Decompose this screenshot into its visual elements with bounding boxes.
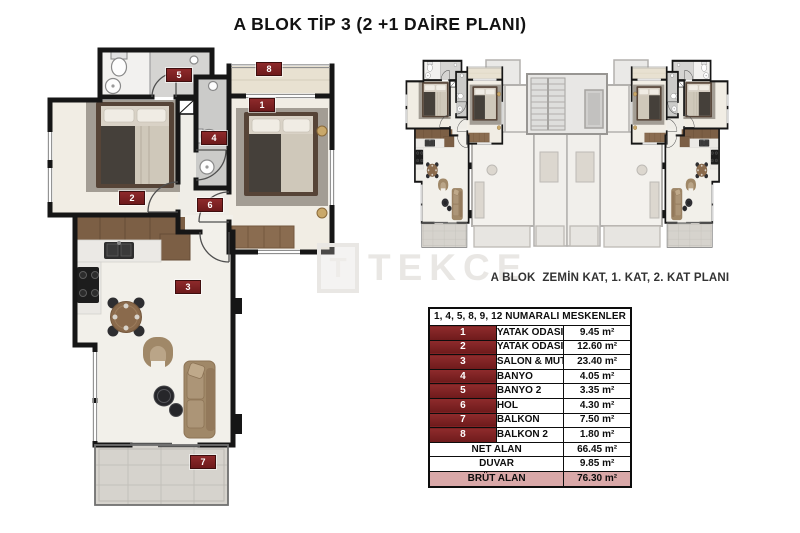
room-name: BANYO 2 xyxy=(496,384,563,399)
summary-label: BRÜT ALAN xyxy=(429,471,564,486)
room-number: 2 xyxy=(429,340,496,355)
room-area: 4.05 m² xyxy=(564,369,631,384)
summary-area: 9.85 m² xyxy=(564,457,631,472)
room-badge-1: 1 xyxy=(249,98,275,112)
screenshot-root: A BLOK TİP 3 (2 +1 DAİRE PLANI) xyxy=(0,0,800,533)
tekce-logo-icon: T xyxy=(317,243,359,293)
overview-caption: A BLOK ZEMİN KAT, 1. KAT, 2. KAT PLANI xyxy=(420,272,800,284)
summary-area: 66.45 m² xyxy=(564,442,631,457)
table-row: 1 YATAK ODASI 9.45 m² xyxy=(429,326,631,341)
room-number: 7 xyxy=(429,413,496,428)
room-area: 23.40 m² xyxy=(564,355,631,370)
summary-label: NET ALAN xyxy=(429,442,564,457)
room-name: SALON & MUTFAK xyxy=(496,355,563,370)
table-header-row: 1, 4, 5, 8, 9, 12 NUMARALI MESKENLER xyxy=(429,308,631,326)
room-area: 9.45 m² xyxy=(564,326,631,341)
table-row: 5 BANYO 2 3.35 m² xyxy=(429,384,631,399)
room-badge-6: 6 xyxy=(197,198,223,212)
room-name: BALKON 2 xyxy=(496,428,563,443)
room-area: 12.60 m² xyxy=(564,340,631,355)
room-name: BALKON xyxy=(496,413,563,428)
room-badge-8: 8 xyxy=(256,62,282,76)
table-row: 6 HOL 4.30 m² xyxy=(429,398,631,413)
stair-core xyxy=(527,74,607,134)
table-row: 8 BALKON 2 1.80 m² xyxy=(429,428,631,443)
table-header: 1, 4, 5, 8, 9, 12 NUMARALI MESKENLER xyxy=(429,308,631,326)
room-badge-5: 5 xyxy=(166,68,192,82)
room-badge-4: 4 xyxy=(201,131,227,145)
summary-row-net: NET ALAN 66.45 m² xyxy=(429,442,631,457)
room-number: 1 xyxy=(429,326,496,341)
room-number: 8 xyxy=(429,428,496,443)
room-name: YATAK ODASI xyxy=(496,326,563,341)
tekce-watermark: T TEKCE xyxy=(317,243,528,293)
room-badge-3: 3 xyxy=(175,280,201,294)
table-row: 3 SALON & MUTFAK 23.40 m² xyxy=(429,355,631,370)
area-table: 1, 4, 5, 8, 9, 12 NUMARALI MESKENLER 1 Y… xyxy=(428,307,632,488)
room-area: 7.50 m² xyxy=(564,413,631,428)
room-number: 4 xyxy=(429,369,496,384)
table-row: 2 YATAK ODASI 2 12.60 m² xyxy=(429,340,631,355)
room-area: 3.35 m² xyxy=(564,384,631,399)
room-name: YATAK ODASI 2 xyxy=(496,340,563,355)
room-name: HOL xyxy=(496,398,563,413)
room-number: 6 xyxy=(429,398,496,413)
room-area: 1.80 m² xyxy=(564,428,631,443)
room-badge-7: 7 xyxy=(190,455,216,469)
summary-area: 76.30 m² xyxy=(564,471,631,486)
room-number: 3 xyxy=(429,355,496,370)
summary-row-brut: BRÜT ALAN 76.30 m² xyxy=(429,471,631,486)
room-number: 5 xyxy=(429,384,496,399)
table-row: 4 BANYO 4.05 m² xyxy=(429,369,631,384)
summary-label: DUVAR xyxy=(429,457,564,472)
table-row: 7 BALKON 7.50 m² xyxy=(429,413,631,428)
room-badge-2: 2 xyxy=(119,191,145,205)
main-plan xyxy=(48,50,333,505)
room-area: 4.30 m² xyxy=(564,398,631,413)
summary-row-duvar: DUVAR 9.85 m² xyxy=(429,457,631,472)
room-name: BANYO xyxy=(496,369,563,384)
